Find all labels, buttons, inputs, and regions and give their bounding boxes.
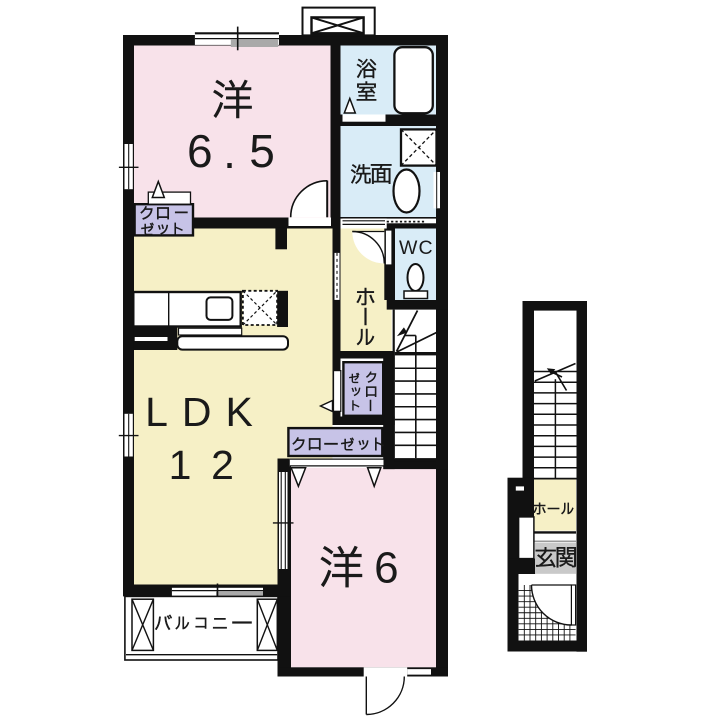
svg-text:5: 5 — [249, 125, 275, 177]
svg-text:2: 2 — [211, 442, 234, 488]
svg-text:6: 6 — [374, 544, 398, 593]
svg-text:1: 1 — [169, 442, 192, 488]
svg-text:.: . — [223, 126, 236, 178]
svg-text:6: 6 — [187, 125, 213, 177]
svg-text:LDK: LDK — [145, 389, 267, 435]
svg-text:WC: WC — [399, 237, 434, 259]
